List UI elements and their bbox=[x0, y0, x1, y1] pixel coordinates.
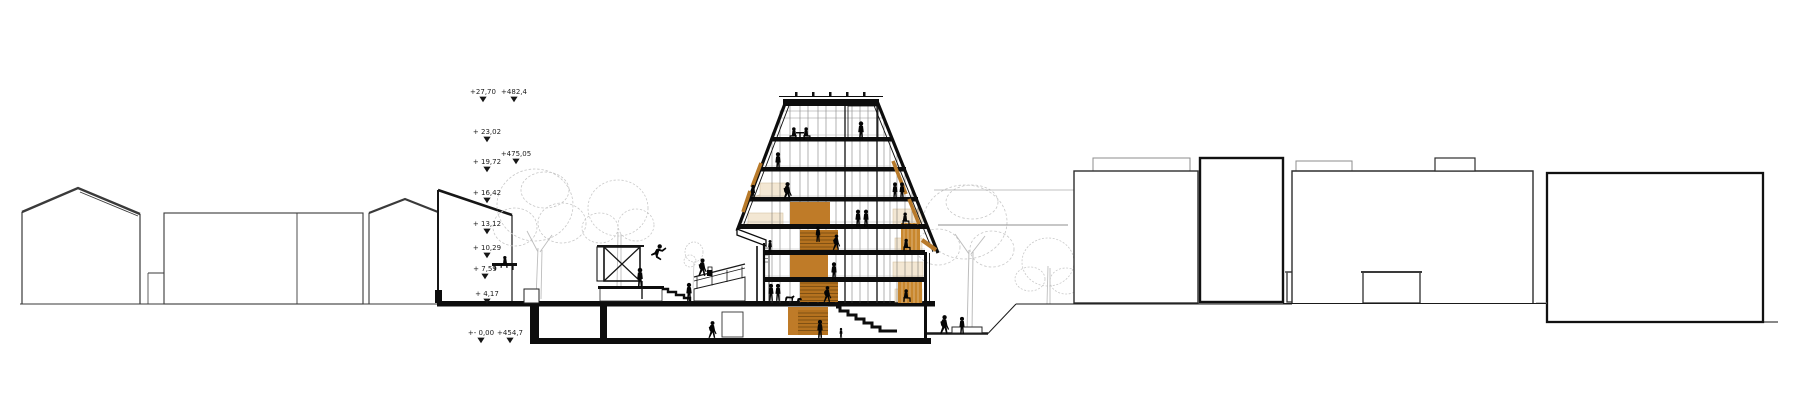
architectural-section-canvas: +27,70+ 23,02+ 19,72+ 16,42+ 13,12+ 10,2… bbox=[0, 0, 1800, 402]
bench-legs bbox=[495, 266, 513, 270]
elevation-marker-arrow-icon bbox=[481, 274, 488, 280]
context-buildings-left bbox=[20, 188, 512, 304]
tree-sketch bbox=[493, 169, 586, 246]
section-drawing: +27,70+ 23,02+ 19,72+ 16,42+ 13,12+ 10,2… bbox=[0, 0, 1800, 402]
elevation-marker-label-relative: + 10,29 bbox=[473, 244, 501, 252]
plaza-left-wall bbox=[435, 290, 442, 303]
luggage bbox=[707, 270, 713, 276]
plaza-steps bbox=[662, 289, 690, 301]
elevation-marker-label-relative: + 4,17 bbox=[475, 290, 499, 298]
roof-vents bbox=[795, 92, 866, 96]
context-building-gable-house-1 bbox=[22, 188, 164, 304]
person-silhouette bbox=[501, 256, 508, 268]
basement-wall bbox=[530, 306, 539, 344]
person-silhouette bbox=[817, 320, 822, 338]
person-silhouette bbox=[698, 258, 706, 275]
table-leg bbox=[799, 134, 800, 141]
person-with-luggage bbox=[698, 258, 712, 276]
stair-flight-striped bbox=[798, 230, 838, 335]
basement-level bbox=[530, 305, 931, 344]
elevation-marker-arrow-icon bbox=[483, 229, 490, 235]
elevation-marker-label-absolute: +454,7 bbox=[497, 329, 523, 337]
elevation-marker-arrow-icon bbox=[483, 198, 490, 204]
bench bbox=[952, 327, 982, 333]
context-building-gable-house-2 bbox=[369, 199, 438, 304]
elevation-marker-arrow-icon bbox=[510, 97, 517, 103]
person-silhouette-child bbox=[840, 328, 843, 338]
roof-slab bbox=[783, 99, 879, 106]
person-silhouette-skater bbox=[651, 244, 666, 260]
elevation-marker-arrow-icon bbox=[512, 159, 519, 165]
context-buildings-right bbox=[927, 158, 1778, 334]
context-building-C bbox=[1292, 158, 1533, 303]
elevation-marker-label-absolute: +475,05 bbox=[501, 150, 531, 158]
basement-right-wall bbox=[924, 305, 927, 338]
person-silhouette bbox=[708, 321, 716, 338]
elevation-marker-arrow-icon bbox=[506, 338, 513, 344]
basement-wall bbox=[600, 306, 607, 344]
elevation-marker-arrow-icon bbox=[483, 253, 490, 259]
context-building-A bbox=[1074, 158, 1198, 303]
basement-stair bbox=[836, 307, 897, 331]
ground-right bbox=[927, 304, 1546, 334]
elevation-marker-label-relative: +- 0,00 bbox=[468, 329, 494, 337]
person-silhouette bbox=[940, 315, 949, 334]
basement-door bbox=[722, 312, 743, 337]
elevation-marker-label-relative: + 19,72 bbox=[473, 158, 501, 166]
stair-bulkhead bbox=[524, 289, 539, 303]
person-silhouette bbox=[900, 182, 905, 198]
elevation-marker-label-absolute: +482,4 bbox=[501, 88, 527, 96]
elevation-marker-label-relative: +27,70 bbox=[470, 88, 496, 96]
deck-fascia bbox=[600, 288, 662, 301]
elevation-marker-arrow-icon bbox=[483, 167, 490, 173]
elevation-marker-label-relative: + 16,42 bbox=[473, 189, 501, 197]
context-building-long-block bbox=[164, 213, 363, 304]
table bbox=[796, 132, 804, 134]
elevation-marker-arrow-icon bbox=[483, 137, 490, 143]
tree-sketch bbox=[1015, 238, 1082, 294]
elevation-marker-label-relative: + 13,12 bbox=[473, 220, 501, 228]
elevation-marker-label-relative: + 7,59 bbox=[473, 265, 497, 273]
context-building-D bbox=[1536, 173, 1778, 322]
tree-trunk bbox=[1047, 266, 1050, 304]
tree-sketch bbox=[916, 185, 1014, 267]
basement-floor-slab bbox=[530, 338, 931, 344]
entrance-canopy bbox=[737, 229, 766, 246]
elevation-marker-arrow-icon bbox=[479, 97, 486, 103]
elevation-marker-arrow-icon bbox=[477, 338, 484, 344]
elevation-marker-label-relative: + 23,02 bbox=[473, 128, 501, 136]
